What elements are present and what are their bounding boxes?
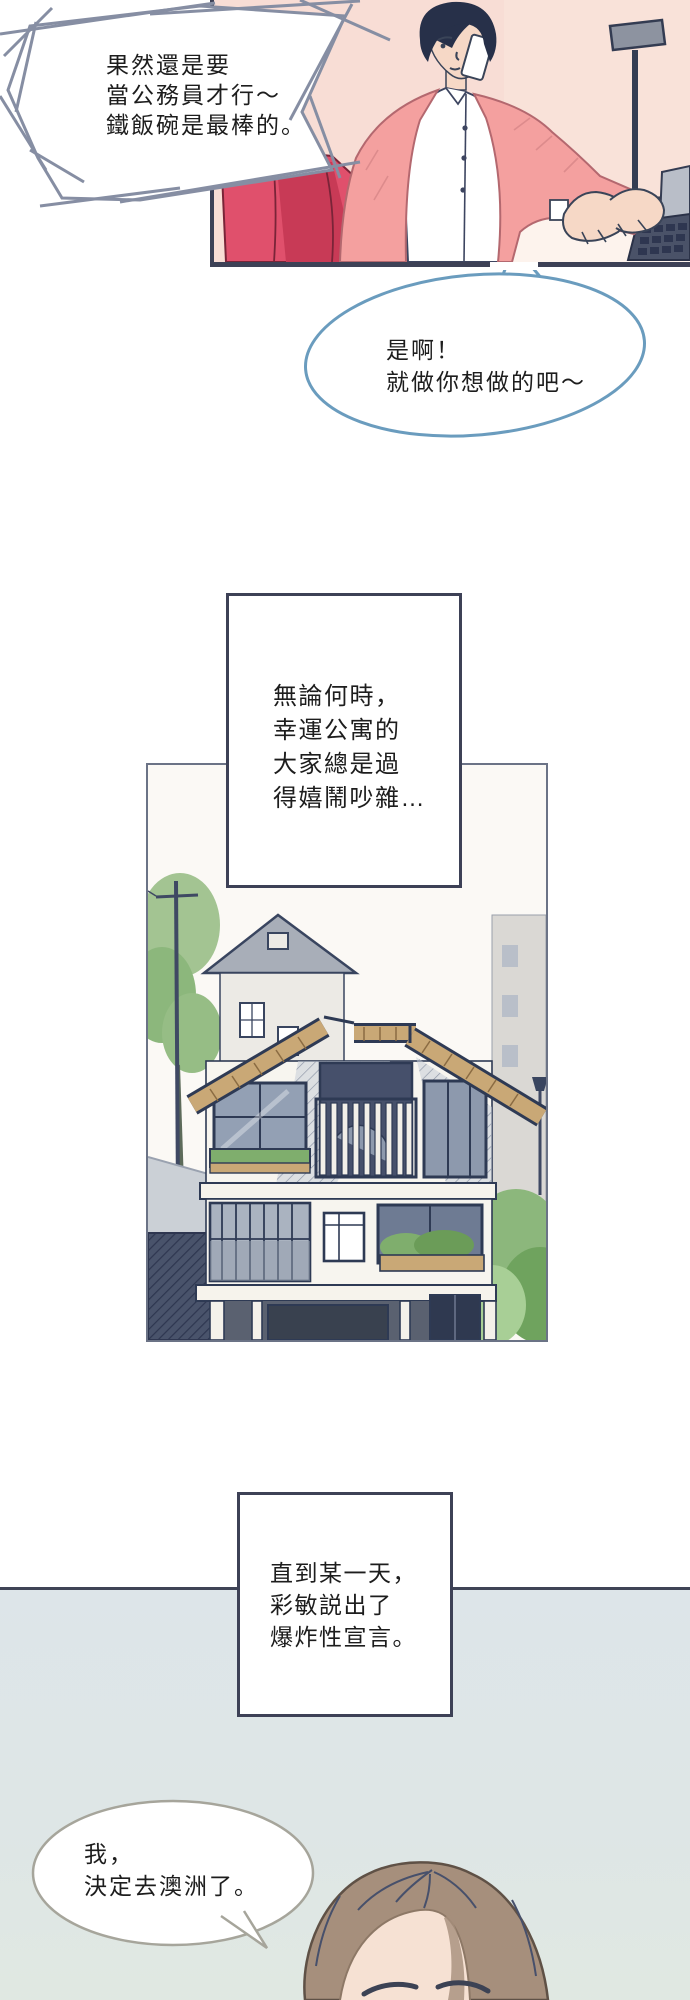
caption-line: 得嬉鬧吵雜… [273,782,459,816]
middle-floor [206,1199,492,1287]
jagged-bubble-text: 果然還是要 當公務員才行～ 鐵飯碗是最棒的。 [106,50,306,140]
background-building-right [492,915,546,1205]
caption-line: 爆炸性宣言。 [270,1621,450,1653]
speech-line: 就做你想做的吧～ [386,366,586,398]
caption-box-announcement: 直到某一天， 彩敏説出了 爆炸性宣言。 [237,1492,453,1717]
ground-floor [210,1295,496,1340]
speech-line: 是啊！ [386,334,586,366]
tail-gap [490,262,538,270]
caption-line: 直到某一天， [270,1557,450,1589]
speech-line: 鐵飯碗是最棒的。 [106,110,306,140]
speech-line: 我， [84,1838,259,1870]
caption-line: 無論何時， [273,680,459,714]
speech-line: 果然還是要 [106,50,306,80]
speech-line: 當公務員才行～ [106,80,306,110]
webtoon-page: 果然還是要 當公務員才行～ 鐵飯碗是最棒的。 是啊！ 就做你想做的吧～ 無論何時… [0,0,690,2000]
caption-box-lucky-apartment: 無論何時， 幸運公寓的 大家總是過 得嬉鬧吵雜… [226,593,462,888]
caption-line: 大家總是過 [273,748,459,782]
caption-line: 彩敏説出了 [270,1589,450,1621]
bottom-bubble-text: 我， 決定去澳洲了。 [84,1838,259,1902]
floor-slab [200,1183,496,1199]
oval-bubble-text: 是啊！ 就做你想做的吧～ [386,334,586,398]
caption-line: 幸運公寓的 [273,714,459,748]
speech-line: 決定去澳洲了。 [84,1870,259,1902]
balcony-railing [316,1099,416,1177]
main-house [192,1017,542,1340]
